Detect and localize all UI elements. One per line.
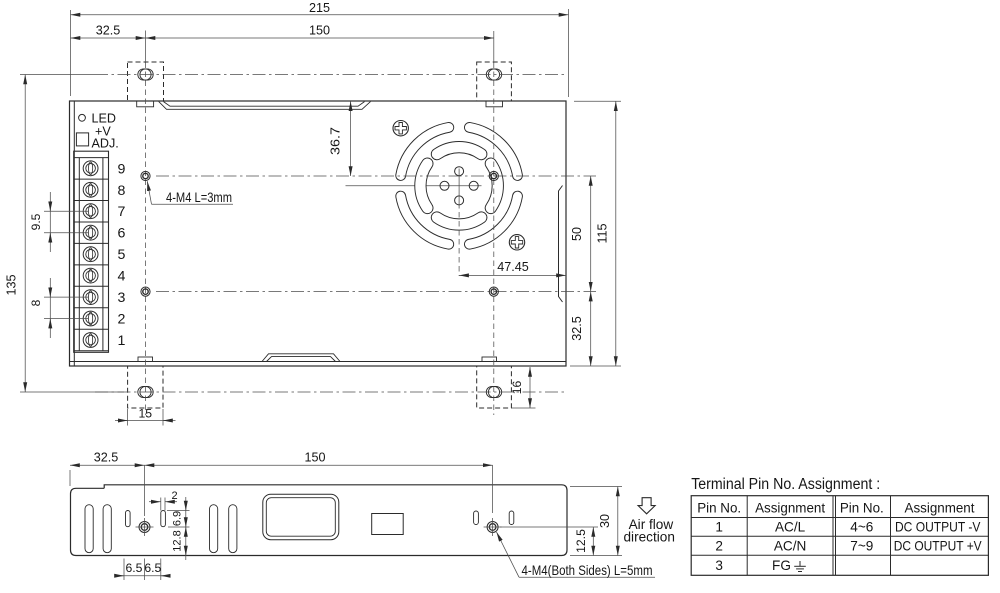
svg-text:3: 3	[118, 290, 126, 306]
svg-text:47.45: 47.45	[497, 260, 529, 274]
svg-text:32.5: 32.5	[570, 316, 584, 341]
svg-text:150: 150	[304, 450, 325, 464]
svg-text:ADJ.: ADJ.	[92, 136, 119, 150]
svg-text:AC/L: AC/L	[775, 520, 806, 535]
svg-text:50: 50	[570, 227, 584, 241]
svg-text:4-M4 L=3mm: 4-M4 L=3mm	[166, 190, 232, 205]
svg-text:Assignment: Assignment	[905, 501, 975, 516]
svg-text:6.9: 6.9	[171, 511, 183, 526]
svg-text:32.5: 32.5	[94, 450, 119, 464]
svg-text:8: 8	[118, 183, 126, 199]
svg-text:FG: FG	[772, 558, 791, 573]
svg-text:16: 16	[510, 381, 524, 395]
svg-text:5: 5	[118, 247, 126, 263]
svg-text:6.5: 6.5	[144, 561, 161, 575]
svg-text:1: 1	[715, 520, 723, 535]
svg-text:AC/N: AC/N	[774, 539, 806, 554]
svg-text:12.5: 12.5	[574, 529, 588, 553]
svg-text:7~9: 7~9	[850, 539, 873, 554]
svg-text:DC OUTPUT +V: DC OUTPUT +V	[894, 539, 982, 554]
svg-text:Pin No.: Pin No.	[840, 501, 884, 516]
svg-text:6.5: 6.5	[126, 561, 143, 575]
svg-text:12.8: 12.8	[171, 530, 183, 551]
svg-text:150: 150	[309, 24, 330, 38]
svg-text:7: 7	[118, 204, 126, 220]
svg-text:LED: LED	[92, 111, 117, 125]
svg-text:9: 9	[118, 161, 126, 177]
svg-text:Assignment: Assignment	[755, 501, 825, 516]
svg-text:115: 115	[596, 223, 610, 243]
svg-text:8: 8	[29, 299, 43, 306]
svg-text:3: 3	[715, 558, 723, 573]
svg-text:32.5: 32.5	[96, 24, 121, 38]
svg-text:4~6: 4~6	[850, 520, 873, 535]
svg-text:6: 6	[118, 226, 126, 242]
svg-text:215: 215	[309, 1, 330, 15]
svg-text:4: 4	[118, 269, 126, 285]
svg-text:Pin No.: Pin No.	[697, 501, 741, 516]
svg-text:2: 2	[715, 539, 723, 554]
svg-text:36.7: 36.7	[329, 127, 343, 155]
svg-text:15: 15	[139, 407, 153, 421]
svg-text:135: 135	[5, 274, 19, 295]
svg-text:1: 1	[118, 333, 126, 349]
svg-text:9.5: 9.5	[29, 213, 43, 230]
svg-text:Terminal Pin No. Assignment :: Terminal Pin No. Assignment :	[691, 476, 880, 493]
svg-text:4-M4(Both Sides) L=5mm: 4-M4(Both Sides) L=5mm	[522, 563, 653, 578]
svg-text:2: 2	[118, 312, 126, 328]
svg-text:direction: direction	[624, 529, 675, 544]
svg-text:DC OUTPUT -V: DC OUTPUT -V	[895, 520, 981, 535]
svg-text:30: 30	[598, 514, 612, 528]
svg-text:2: 2	[171, 490, 177, 502]
